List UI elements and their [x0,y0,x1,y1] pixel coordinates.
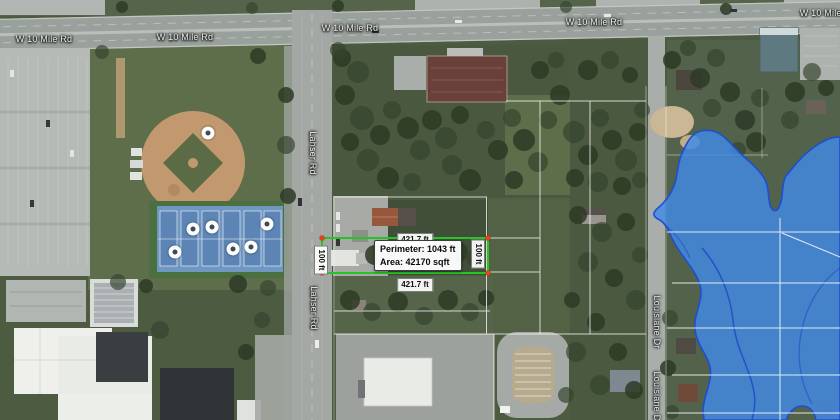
tennis-courts [149,201,289,278]
poi-marker-icon[interactable] [227,243,240,256]
poi-marker-icon[interactable] [187,223,200,236]
vertex-handle-top-right[interactable] [486,236,491,241]
road-label-w10mile: W 10 Mile Rd [800,8,840,18]
poi-marker-icon[interactable] [206,221,219,234]
measure-label-height-left: 100 ft [314,246,328,275]
measurement-tooltip: Perimeter: 1043 ft Area: 42170 sqft [374,240,462,271]
parking-lot-west [0,48,90,276]
poi-marker-icon[interactable] [169,246,182,259]
satellite-imagery [0,0,840,420]
poi-marker-icon[interactable] [245,241,258,254]
parking-loop [497,332,569,418]
road-label-w10mile: W 10 Mile Rd [16,34,72,44]
tooltip-area: Area: 42170 sqft [380,256,456,269]
road-label-lahser: Lahser Rd [309,286,319,329]
road-label-louisiane: Louisiane Dr [652,372,662,420]
road-label-w10mile: W 10 Mile Rd [157,32,213,42]
poi-marker-icon[interactable] [202,127,215,140]
road-lahser [284,10,332,420]
road-label-w10mile: W 10 Mile Rd [566,17,622,27]
road-label-louisiane: Louisiane Dr [652,296,662,349]
measure-label-height-right: 100 ft [471,240,485,269]
tooltip-perimeter: Perimeter: 1043 ft [380,243,456,256]
vertex-handle-top-left[interactable] [320,236,325,241]
building-top-right [760,28,840,80]
measure-label-width-bottom: 421.7 ft [397,278,433,292]
map-canvas[interactable]: W 10 Mile Rd W 10 Mile Rd W 10 Mile Rd W… [0,0,840,420]
road-label-w10mile: W 10 Mile Rd [322,23,378,33]
poi-marker-icon[interactable] [261,218,274,231]
road-label-lahser: Lahser Rd [308,131,318,174]
vertex-handle-bottom-right[interactable] [486,271,491,276]
